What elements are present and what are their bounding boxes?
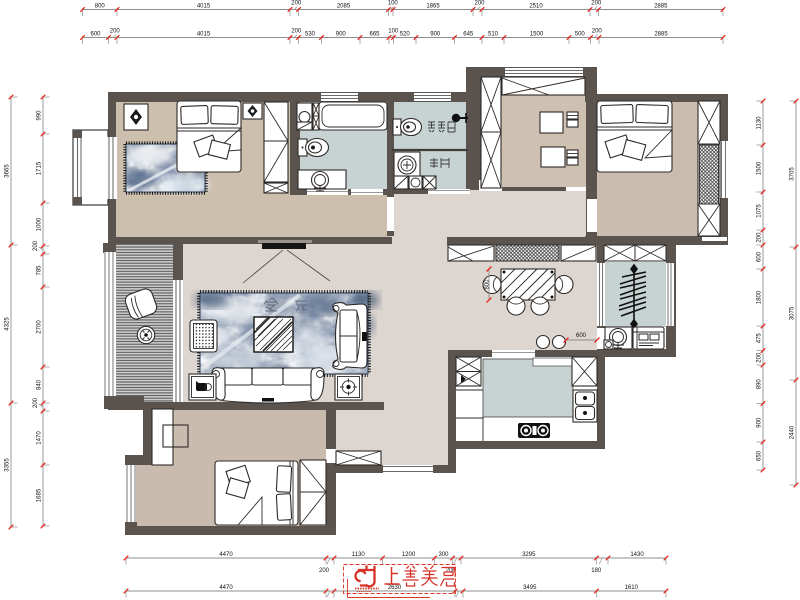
svg-text:200: 200 (33, 397, 39, 408)
svg-text:1470: 1470 (37, 431, 43, 445)
svg-text:520: 520 (400, 32, 411, 38)
svg-text:1500: 1500 (530, 32, 544, 38)
svg-text:840: 840 (37, 379, 43, 390)
svg-text:1800: 1800 (757, 290, 763, 304)
svg-text:785: 785 (37, 265, 43, 276)
svg-text:4325: 4325 (5, 317, 11, 331)
svg-text:200: 200 (319, 568, 330, 574)
svg-text:800: 800 (485, 279, 491, 290)
svg-text:1130: 1130 (352, 552, 366, 558)
svg-text:200: 200 (110, 29, 121, 35)
svg-text:300: 300 (438, 552, 449, 558)
svg-text:200: 200 (33, 240, 39, 251)
svg-text:2440: 2440 (790, 425, 796, 439)
svg-text:4015: 4015 (197, 32, 211, 38)
svg-text:2510: 2510 (529, 4, 543, 10)
svg-text:3495: 3495 (523, 585, 537, 591)
svg-text:100: 100 (388, 1, 399, 7)
svg-text:100: 100 (388, 29, 399, 35)
svg-text:200: 200 (592, 29, 603, 35)
svg-text:4015: 4015 (197, 4, 211, 10)
svg-text:600: 600 (576, 333, 587, 339)
svg-text:2700: 2700 (37, 320, 43, 334)
svg-text:3665: 3665 (5, 164, 11, 178)
svg-text:650: 650 (757, 450, 763, 461)
svg-text:1430: 1430 (630, 552, 644, 558)
svg-text:1865: 1865 (426, 4, 440, 10)
svg-text:200: 200 (291, 29, 302, 35)
svg-text:1715: 1715 (37, 161, 43, 175)
svg-text:2885: 2885 (654, 32, 668, 38)
svg-text:3705: 3705 (790, 167, 796, 181)
svg-text:900: 900 (757, 417, 763, 428)
svg-text:1000: 1000 (37, 217, 43, 231)
svg-text:200: 200 (291, 1, 302, 7)
svg-text:1685: 1685 (37, 488, 43, 502)
svg-text:1130: 1130 (757, 116, 763, 130)
svg-text:180: 180 (591, 568, 602, 574)
svg-text:1610: 1610 (625, 585, 639, 591)
svg-text:1075: 1075 (757, 204, 763, 218)
svg-text:530: 530 (305, 32, 316, 38)
svg-text:2630: 2630 (388, 585, 402, 591)
svg-text:3295: 3295 (522, 552, 536, 558)
svg-text:4470: 4470 (219, 552, 233, 558)
svg-text:3355: 3355 (5, 458, 11, 472)
svg-text:200: 200 (757, 352, 763, 363)
svg-text:645: 645 (463, 32, 474, 38)
svg-text:2885: 2885 (654, 4, 668, 10)
svg-text:200: 200 (474, 1, 485, 7)
svg-text:500: 500 (575, 32, 586, 38)
svg-text:4470: 4470 (219, 585, 233, 591)
svg-text:600: 600 (757, 251, 763, 262)
svg-text:800: 800 (95, 4, 106, 10)
svg-text:665: 665 (369, 32, 380, 38)
svg-text:900: 900 (430, 32, 441, 38)
svg-text:900: 900 (336, 32, 347, 38)
svg-text:1500: 1500 (757, 161, 763, 175)
svg-text:200: 200 (591, 1, 602, 7)
svg-text:510: 510 (488, 32, 499, 38)
svg-text:3075: 3075 (790, 306, 796, 320)
svg-text:1200: 1200 (402, 552, 416, 558)
svg-text:200: 200 (757, 232, 763, 243)
svg-text:2085: 2085 (337, 4, 351, 10)
svg-text:890: 890 (757, 379, 763, 390)
svg-text:990: 990 (37, 110, 43, 121)
svg-text:600: 600 (90, 32, 101, 38)
svg-text:475: 475 (757, 333, 763, 344)
